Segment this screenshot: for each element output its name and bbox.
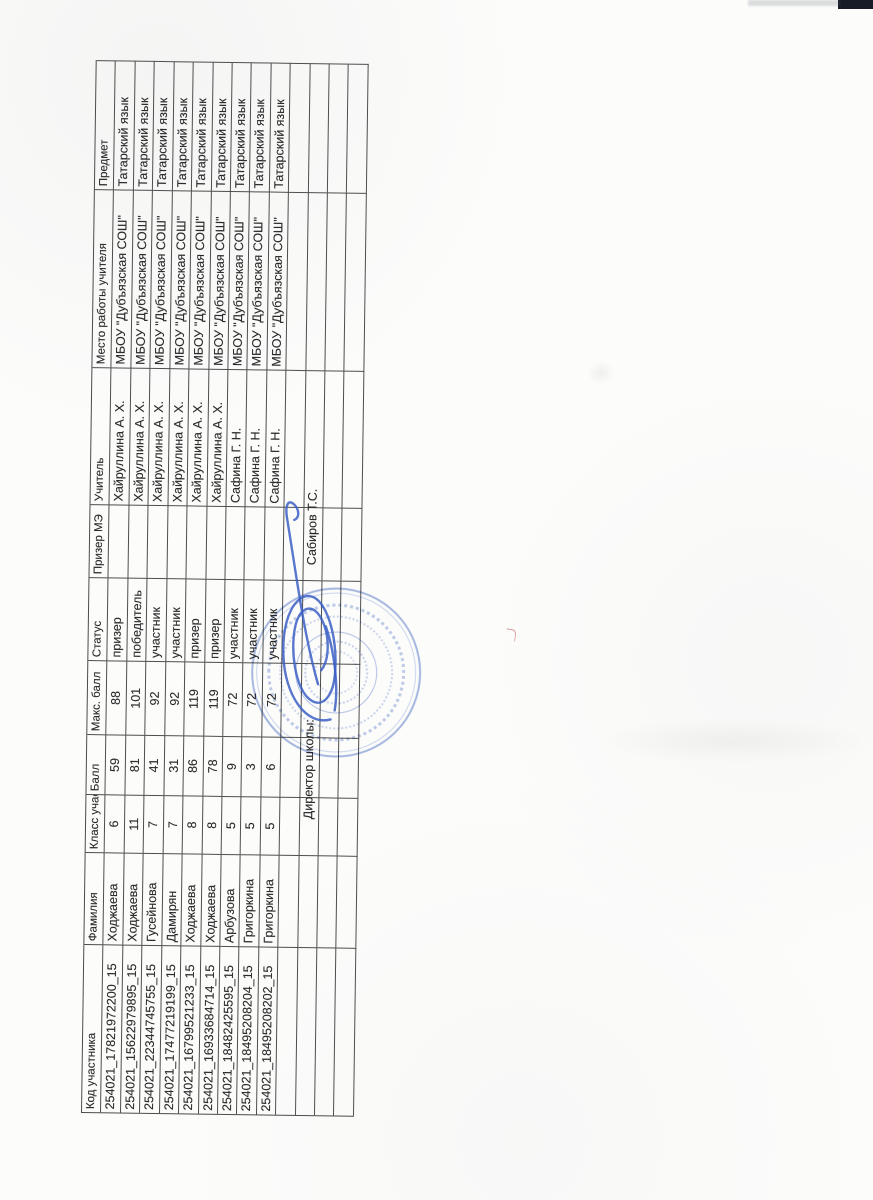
table-cell — [337, 856, 358, 948]
table-cell: 81 — [125, 735, 145, 795]
cell-value: МБОУ "Дубъязская СОШ" — [250, 217, 266, 367]
table-cell: Ходжаева — [181, 853, 202, 945]
header-label: Призер МЭ — [93, 514, 106, 574]
cell-value: 8 — [185, 821, 199, 828]
header-label: Учитель — [94, 458, 107, 502]
table-cell: Татарский язык — [250, 62, 271, 191]
table-cell: 254021_22344745755_15 — [140, 945, 162, 1113]
cell-value: 6 — [107, 820, 121, 827]
table-cell — [309, 63, 330, 192]
table-cell: МБОУ "Дубъязская СОШ" — [228, 191, 250, 369]
table-cell: МБОУ "Дубъязская СОШ" — [170, 190, 192, 368]
cell-value: Ходжаева — [203, 885, 218, 943]
table-cell: 86 — [184, 735, 204, 795]
cell-value: МБОУ "Дубъязская СОШ" — [230, 217, 246, 367]
table-cell: 254021_17821972200_15 — [101, 944, 123, 1112]
table-cell: 254021_16933684714_15 — [199, 946, 221, 1114]
cell-value: 78 — [205, 759, 219, 773]
table-cell: Хайруллина А. Х. — [149, 368, 170, 505]
table-cell: Хайруллина А. Х. — [188, 368, 209, 505]
table-cell — [167, 505, 187, 578]
scan-artifact-red-mark — [505, 628, 517, 641]
table-cell: Татарский язык — [173, 61, 194, 190]
table-cell — [148, 505, 168, 578]
table-cell — [187, 505, 207, 578]
cell-value: Татарский язык — [155, 98, 170, 188]
cell-value: 101 — [128, 688, 142, 709]
table-cell: 78 — [203, 736, 223, 796]
table-cell — [317, 855, 338, 947]
table-cell — [225, 506, 245, 579]
cell-value: 7 — [166, 821, 180, 828]
cell-value: 254021_15622979895_15 — [123, 964, 139, 1110]
scan-artifact-corner-mark — [838, 0, 873, 9]
table-cell: Хайруллина А. Х. — [168, 368, 189, 505]
table-cell: 92 — [165, 661, 185, 735]
table-cell: 7 — [144, 795, 164, 853]
cell-value: МБОУ "Дубъязская СОШ" — [133, 215, 149, 365]
header-cell: Место работы учителя — [92, 189, 114, 367]
cell-value: Татарский язык — [175, 98, 190, 188]
table-cell: 8 — [202, 796, 222, 854]
table-cell — [345, 193, 367, 371]
cell-value: 254021_18495208202_15 — [259, 965, 275, 1111]
cell-value: победитель — [129, 590, 144, 658]
header-cell: Класс учас — [86, 794, 106, 852]
table-cell — [276, 947, 298, 1115]
table-cell: Ходжаева — [104, 852, 125, 944]
table-cell: Хайруллина А. Х. — [129, 368, 150, 505]
table-cell: Татарский язык — [114, 60, 135, 189]
table-cell: 31 — [164, 735, 184, 795]
header-label: Балл — [89, 764, 101, 792]
cell-value: 11 — [127, 818, 141, 831]
table-cell: МБОУ "Дубъязская СОШ" — [112, 189, 134, 367]
table-cell: 101 — [126, 661, 146, 735]
header-cell: Макс. балл — [87, 660, 107, 734]
table-cell: 7 — [163, 795, 183, 853]
cell-value: участник — [168, 607, 183, 658]
table-cell — [338, 798, 358, 856]
table-cell: Григоркина — [240, 854, 261, 946]
cell-value: 5 — [263, 823, 277, 830]
header-label: Код участника — [85, 1033, 98, 1110]
cell-value: Татарский язык — [213, 98, 228, 188]
cell-value: призер — [207, 619, 222, 659]
signature-ink — [272, 476, 354, 745]
table-cell: участник — [147, 578, 168, 661]
header-cell: Фамилия — [84, 852, 105, 944]
table-cell: МБОУ "Дубъязская СОШ" — [131, 190, 153, 368]
table-cell: участник — [166, 578, 187, 661]
table-cell — [319, 797, 339, 855]
table-cell: Арбузова — [220, 854, 241, 946]
cell-value: призер — [110, 617, 125, 657]
table-cell: 119 — [184, 661, 204, 735]
cell-value: Татарский язык — [194, 98, 209, 188]
table-cell: 6 — [105, 794, 125, 852]
cell-value: Дамирян — [164, 891, 179, 943]
table-cell: Татарский язык — [153, 61, 174, 190]
header-cell: Призер МЭ — [89, 504, 109, 577]
table-cell: участник — [224, 579, 245, 662]
scan-artifact-speck — [586, 360, 616, 386]
table-cell — [109, 504, 129, 577]
cell-value: 86 — [186, 759, 200, 773]
table-cell: Григоркина — [259, 854, 280, 946]
table-cell — [206, 506, 226, 579]
table-cell: победитель — [127, 578, 148, 661]
header-label: Класс учас — [89, 794, 102, 849]
table-cell: 119 — [204, 662, 224, 736]
cell-value: Татарский язык — [272, 99, 287, 189]
table-cell: призер — [205, 579, 226, 662]
table-cell: 254021_17477219199_15 — [160, 945, 182, 1113]
cell-value: 88 — [109, 691, 123, 705]
cell-value: 72 — [226, 693, 240, 707]
cell-value: МБОУ "Дубъязская СОШ" — [153, 216, 169, 366]
cell-value: 6 — [264, 764, 278, 771]
cell-value: Ходжаева — [125, 884, 140, 942]
table-cell: 72 — [223, 662, 243, 736]
table-cell: 254021_18482425595_15 — [218, 946, 240, 1114]
table-cell — [128, 505, 148, 578]
cell-value: Хайруллина А. Х. — [131, 401, 146, 502]
cell-value: 59 — [108, 758, 122, 772]
scan-artifact-edge-streak — [748, 0, 840, 6]
header-label: Предмет — [98, 139, 111, 186]
table-cell — [328, 63, 349, 192]
cell-value: 92 — [148, 691, 162, 705]
cell-value: 41 — [147, 758, 161, 772]
scanned-page: Код участникаФамилияКласс учасБаллМакс. … — [0, 0, 873, 1200]
table-cell — [279, 855, 300, 947]
cell-value: 254021_22344745755_15 — [142, 964, 158, 1110]
cell-value: Сафина Г. Н. — [228, 428, 243, 504]
header-label: Место работы учителя — [95, 243, 109, 364]
cell-value: призер — [187, 618, 202, 658]
table-cell: МБОУ "Дубъязская СОШ" — [209, 191, 231, 369]
table-cell: Ходжаева — [123, 853, 144, 945]
table-cell: 8 — [183, 795, 203, 853]
cell-value: Хайруллина А. Х. — [151, 401, 166, 502]
table-cell: Хайруллина А. Х. — [110, 367, 131, 504]
table-cell — [334, 948, 356, 1116]
cell-value: МБОУ "Дубъязская СОШ" — [114, 215, 130, 365]
table-cell — [315, 947, 337, 1115]
table-cell: 254021_18495208202_15 — [257, 946, 279, 1114]
cell-value: МБОУ "Дубъязская СОШ" — [269, 217, 285, 367]
table-cell: 9 — [222, 736, 242, 796]
cell-value: 254021_17821972200_15 — [103, 963, 119, 1109]
header-cell: Предмет — [95, 60, 116, 189]
table-cell: 92 — [146, 661, 166, 735]
table-cell: МБОУ "Дубъязская СОШ" — [248, 191, 270, 369]
header-cell: Учитель — [91, 367, 112, 504]
cell-value: Хайруллина А. Х. — [209, 402, 224, 503]
table-cell: Дамирян — [162, 853, 183, 945]
table-cell — [289, 63, 310, 192]
cell-value: участник — [226, 608, 241, 659]
table-cell: 254021_16799521233_15 — [179, 945, 201, 1113]
table-cell: Татарский язык — [134, 61, 155, 190]
table-cell: Сафина Г. Н. — [246, 369, 267, 506]
cell-value: Григоркина — [261, 879, 276, 944]
cell-value: 119 — [206, 689, 220, 709]
cell-value: 9 — [225, 763, 239, 770]
table-cell: 41 — [145, 735, 165, 795]
table-cell — [306, 192, 328, 370]
cell-value: 254021_18495208204_15 — [239, 965, 255, 1111]
header-cell: Балл — [86, 734, 106, 794]
table-cell: МБОУ "Дубъязская СОШ" — [190, 190, 212, 368]
scanned-document-sheet: Код участникаФамилияКласс учасБаллМакс. … — [81, 61, 368, 1117]
cell-value: 254021_18482425595_15 — [220, 965, 236, 1111]
cell-value: 254021_16933684714_15 — [201, 965, 217, 1111]
cell-value: 254021_16799521233_15 — [181, 964, 197, 1110]
scan-artifact-smudge — [596, 718, 870, 764]
cell-value: 81 — [128, 758, 142, 772]
table-cell: Гусейнова — [143, 853, 164, 945]
table-cell: 59 — [106, 734, 126, 794]
table-cell: 5 — [222, 796, 242, 854]
cell-value: Хайруллина А. Х. — [112, 400, 127, 501]
cell-value: 5 — [243, 822, 257, 829]
table-cell: призер — [185, 578, 206, 661]
table-cell — [325, 192, 347, 370]
cell-value: Татарский язык — [252, 99, 267, 189]
table-cell — [245, 506, 265, 579]
table-cell: призер — [108, 577, 129, 660]
header-cell: Код участника — [82, 944, 104, 1112]
cell-value: 92 — [167, 692, 181, 706]
table-cell — [347, 64, 368, 193]
table-cell — [280, 797, 300, 855]
cell-value: Григоркина — [242, 879, 257, 944]
cell-value: 5 — [224, 822, 238, 829]
header-cell: Статус — [88, 577, 109, 660]
table-cell: Сафина Г. Н. — [226, 369, 247, 506]
table-cell: 5 — [260, 796, 280, 854]
table-cell: Татарский язык — [231, 62, 252, 191]
table-cell: 88 — [107, 660, 127, 734]
cell-value: МБОУ "Дубъязская СОШ" — [192, 216, 208, 366]
cell-value: 31 — [166, 759, 180, 773]
cell-value: Татарский язык — [116, 97, 131, 187]
table-cell: 11 — [124, 795, 144, 853]
cell-value: МБОУ "Дубъязская СОШ" — [211, 216, 227, 366]
cell-value: 254021_17477219199_15 — [162, 964, 178, 1110]
table-cell: МБОУ "Дубъязская СОШ" — [151, 190, 173, 368]
table-cell: МБОУ "Дубъязская СОШ" — [267, 192, 289, 370]
cell-value: Арбузова — [222, 889, 237, 944]
cell-value: Гусейнова — [145, 882, 160, 942]
table-cell: Татарский язык — [211, 62, 232, 191]
table-cell: Ходжаева — [201, 854, 222, 946]
table-cell: 5 — [241, 796, 261, 854]
cell-value: 8 — [205, 822, 219, 829]
header-label: Статус — [91, 621, 104, 658]
table-cell: Татарский язык — [192, 61, 213, 190]
table-cell: Татарский язык — [270, 63, 291, 192]
header-label: Макс. балл — [90, 672, 103, 732]
header-label: Фамилия — [87, 892, 100, 941]
table-cell — [287, 192, 309, 370]
cell-value: Хайруллина А. Х. — [190, 401, 205, 502]
table-cell — [296, 947, 318, 1115]
cell-value: МБОУ "Дубъязская СОШ" — [172, 216, 188, 366]
cell-value: Татарский язык — [233, 99, 248, 189]
table-cell: Хайруллина А. Х. — [207, 369, 228, 506]
table-cell — [298, 855, 319, 947]
table-cell: 254021_15622979895_15 — [121, 945, 143, 1113]
cell-value: Ходжаева — [184, 885, 199, 943]
cell-value: 7 — [146, 821, 160, 828]
cell-value: Сафина Г. Н. — [248, 428, 263, 504]
cell-value: Ходжаева — [106, 883, 121, 941]
cell-value: Хайруллина А. Х. — [170, 401, 185, 502]
cell-value: участник — [149, 607, 164, 658]
cell-value: Татарский язык — [136, 97, 151, 187]
table-cell: 254021_18495208204_15 — [237, 946, 259, 1114]
cell-value: 119 — [187, 689, 201, 709]
cell-value: 3 — [244, 763, 258, 770]
